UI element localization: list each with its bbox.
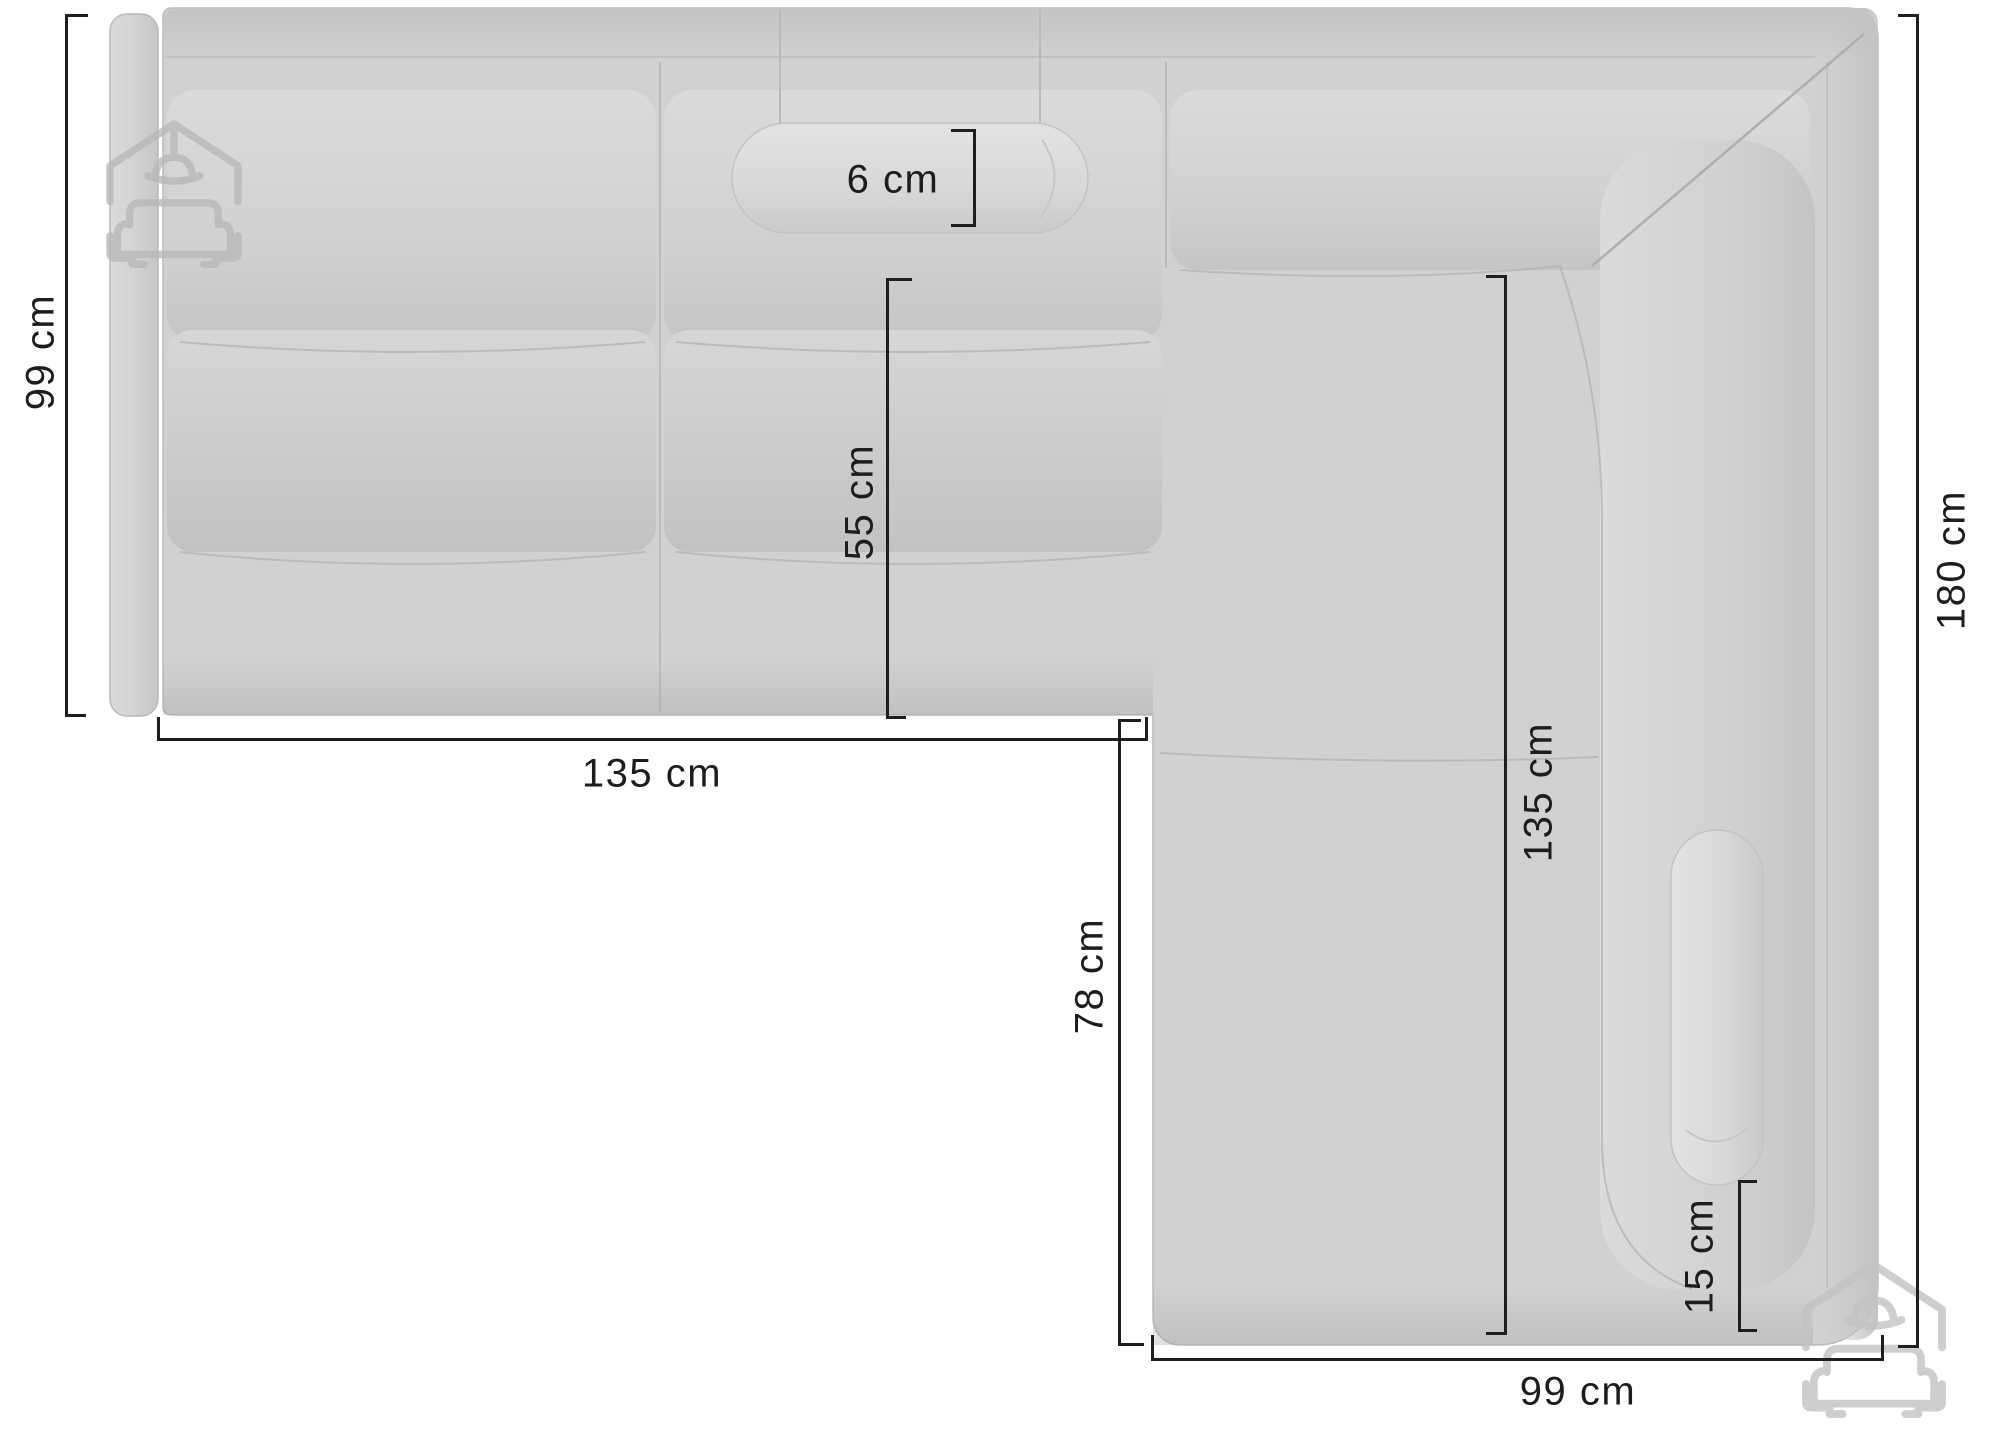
dimension-tick bbox=[1738, 1180, 1757, 1183]
dimension-line bbox=[1504, 275, 1507, 1335]
dimension-label: 78 cm bbox=[1068, 918, 1113, 1034]
dimension-tick bbox=[1145, 717, 1148, 741]
seat-front-edge bbox=[163, 660, 1153, 715]
lumbar-cushion-left bbox=[167, 330, 656, 552]
dimension-tick bbox=[1118, 1343, 1144, 1346]
sofa-dimension-diagram: 99 cm 135 cm 6 cm 55 cm 135 cm 180 cm 78… bbox=[0, 0, 2000, 1455]
dimension-tick bbox=[1881, 1335, 1884, 1361]
dimension-tick bbox=[1738, 1329, 1757, 1332]
dimension-line bbox=[157, 738, 1148, 741]
dimension-tick bbox=[1118, 719, 1141, 722]
dimension-line bbox=[1118, 719, 1121, 1346]
dimension-tick bbox=[1486, 1332, 1507, 1335]
dimension-line bbox=[886, 278, 889, 719]
dimension-tick bbox=[1151, 1335, 1154, 1361]
dimension-label: 55 cm bbox=[838, 444, 883, 560]
sofa-back-rim bbox=[163, 8, 1878, 62]
sofa-icon bbox=[117, 203, 230, 265]
dimension-tick bbox=[886, 278, 912, 281]
brand-watermark-bottom-right bbox=[1795, 1248, 1953, 1418]
dimension-label: 180 cm bbox=[1930, 490, 1975, 630]
dimension-tick bbox=[886, 716, 906, 719]
dimension-line bbox=[1151, 1358, 1884, 1361]
dimension-line bbox=[973, 129, 976, 227]
dimension-tick bbox=[65, 14, 88, 17]
dimension-tick bbox=[65, 714, 86, 717]
dimension-tick bbox=[157, 717, 160, 741]
dimension-label: 135 cm bbox=[1517, 722, 1562, 862]
dimension-line bbox=[1738, 1180, 1741, 1332]
lumbar-cushion-middle bbox=[664, 330, 1162, 552]
dimension-label: 99 cm bbox=[19, 294, 64, 410]
dimension-tick bbox=[1898, 1345, 1919, 1348]
headrest-pillow-vertical bbox=[1671, 830, 1763, 1185]
dimension-label: 6 cm bbox=[847, 158, 940, 203]
dimension-tick bbox=[951, 129, 976, 132]
dimension-label: 99 cm bbox=[1520, 1370, 1636, 1415]
dimension-tick bbox=[1898, 14, 1919, 17]
brand-watermark-top-left bbox=[100, 108, 248, 268]
dimension-label: 135 cm bbox=[582, 752, 722, 797]
dimension-line bbox=[1916, 14, 1919, 1348]
sofa-right-rim bbox=[1822, 10, 1878, 1340]
dimension-label: 15 cm bbox=[1678, 1198, 1723, 1314]
dimension-line bbox=[65, 14, 68, 717]
dimension-tick bbox=[951, 224, 976, 227]
dimension-tick bbox=[1486, 275, 1507, 278]
